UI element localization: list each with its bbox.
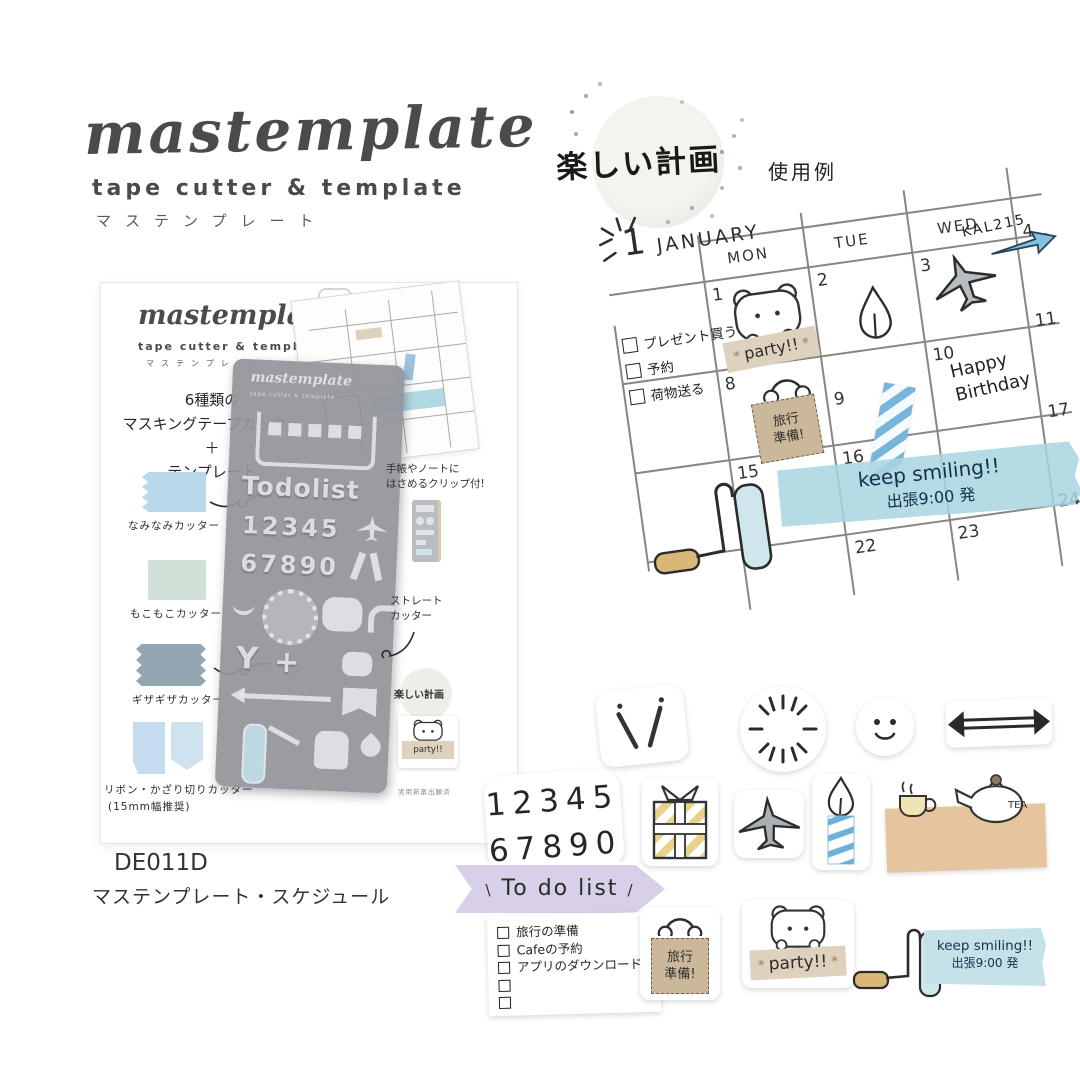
smiley-icon — [856, 698, 914, 756]
stencil-plane-icon — [353, 512, 390, 546]
todolist-banner-label: \ To do list / — [455, 865, 665, 913]
fluffy-cutter-sample — [148, 560, 206, 600]
stencil-flag-cutout — [342, 688, 377, 717]
checkbox-icon — [498, 962, 510, 974]
checkbox-icon — [497, 927, 509, 939]
teacup-icon — [894, 776, 942, 822]
tea-set-sticker: TEA — [888, 768, 1048, 820]
checkbox-icon — [621, 337, 638, 354]
brand-katakana: マステンプレート — [96, 210, 328, 231]
candle-icon — [812, 774, 870, 870]
brand-logo: mastemplate — [83, 92, 538, 168]
fluffy-cutter-label: もこもこカッター — [130, 606, 222, 621]
sunburst-sticker — [740, 686, 826, 772]
gift-icon — [642, 778, 718, 866]
party-washi-tape: party!! — [749, 946, 846, 981]
day-header-mon: MON — [726, 244, 770, 268]
stencil-hand-cutout — [314, 730, 350, 769]
product-code: DE011D — [114, 850, 208, 876]
stencil-brand: mastemplate — [250, 369, 352, 389]
travel-bag-sticker: 旅行準備! — [748, 368, 827, 463]
todolist-banner: \ To do list / — [452, 862, 668, 916]
airplane-sticker — [734, 790, 804, 858]
day-header-tue: TUE — [833, 230, 871, 253]
double-arrow-sticker — [945, 698, 1053, 748]
airplane-icon — [732, 788, 807, 861]
stencil-numbers-1: 12345 — [242, 511, 342, 543]
date-23: 23 — [957, 521, 981, 544]
todo-item-empty — [499, 990, 651, 1011]
stencil-drop-cutout — [356, 733, 384, 761]
checkbox-icon — [629, 388, 646, 405]
stencil-roller-handle — [268, 725, 300, 746]
date-22: 22 — [854, 536, 878, 559]
patent-note: 実用新案出願済 — [398, 786, 451, 796]
date-17: 17 — [1046, 399, 1070, 422]
stencil-scallop-circle-cutout — [261, 588, 319, 646]
plan-stamp-label: 楽しい計画 — [555, 134, 722, 188]
brand-subtitle: tape cutter & template — [92, 176, 466, 201]
date-1: 1 — [711, 285, 725, 306]
checkbox-icon — [499, 997, 511, 1009]
sunburst-icon — [740, 686, 826, 772]
svg-text:TEA: TEA — [1007, 800, 1027, 811]
stencil-cross-cutout: + — [273, 645, 300, 681]
stencil-y-arrow-cutout: Y — [236, 641, 259, 677]
date-9: 9 — [833, 389, 847, 410]
bag-handle-icon — [648, 912, 712, 936]
teapot-icon: TEA — [946, 768, 1038, 824]
stencil-subtitle: tape cutter & template — [250, 391, 335, 401]
double-arrow-icon — [945, 698, 1053, 748]
bear-icon — [765, 904, 831, 950]
stencil-arrow-head — [230, 687, 245, 704]
connector-squiggle — [380, 628, 420, 664]
birthday-note: HappyBirthday — [948, 344, 1033, 408]
gift-sticker — [642, 778, 718, 866]
pen-marks-sticker — [594, 684, 689, 769]
date-2: 2 — [816, 270, 830, 291]
stencil-speech-bubble-cutout — [322, 597, 363, 633]
checkbox-icon — [498, 979, 510, 991]
travel-bag-sticker: 旅行準備! — [640, 908, 720, 1000]
stencil-bear-cutout — [342, 651, 373, 676]
stencil-numbers-2: 67890 — [240, 549, 340, 581]
clip-note: 手帳やノートにはさめるクリップ付! — [386, 462, 485, 492]
straight-cutter-label: ストレートカッター — [390, 594, 443, 624]
wavy-cutter-sample — [142, 472, 206, 512]
todolist-paper: 旅行の準備 Cafeの予約 アプリのダウンロード — [487, 912, 662, 1016]
stencil-todolist: Todolist — [241, 471, 360, 505]
package-stamp-label: 楽しい計画 — [394, 686, 444, 701]
stencil-roller-cutout — [241, 723, 268, 784]
candle-flame-icon — [849, 283, 901, 351]
zigzag-cutter-label: ギザギザカッター — [132, 692, 224, 707]
wavy-cutter-label: なみなみカッター — [128, 518, 220, 533]
stamp-dots-decor — [570, 110, 574, 114]
package-bear-party-sticker: party!! — [398, 716, 458, 768]
stencil-candle-cutout — [370, 552, 382, 581]
stencil-smile-cutout — [232, 597, 255, 616]
ribbon-cutter-sublabel: (15mm幅推奨) — [108, 799, 191, 814]
stencil-candle-cutout — [350, 552, 366, 581]
product-page: mastemplate tape cutter & template マステンプ… — [0, 0, 1080, 1080]
roller-keep-smiling-sticker: keep smiling!! 出張9:00 発 — [850, 916, 1054, 1008]
bear-party-sticker: party!! — [742, 900, 854, 988]
pen-marks-icon — [594, 684, 689, 769]
checkbox-icon — [625, 363, 642, 380]
tape-slot-cutout — [255, 412, 377, 471]
calendar-example: 1 JANUARY MON TUE WED プレゼント買う 予約 荷物送る 1 … — [588, 154, 1080, 625]
keep-smiling-washi-tape: keep smiling!! 出張9:00 発 — [924, 928, 1046, 986]
candle-sticker — [812, 774, 870, 870]
bear-icon — [411, 719, 445, 741]
product-name: マステンプレート・スケジュール — [92, 882, 390, 909]
usage-example-label: 使用例 — [768, 156, 837, 185]
template-stencil: mastemplate tape cutter & template Todol… — [215, 358, 406, 793]
smiley-sticker — [856, 698, 914, 756]
date-11: 11 — [1034, 308, 1058, 331]
numbers-sticker: 12345 67890 — [483, 767, 626, 876]
stencil-arrow-cutout — [239, 693, 331, 702]
ribbon-cutter-sample — [133, 722, 165, 774]
zigzag-cutter-sample — [136, 644, 206, 686]
clip-illustration — [412, 500, 438, 562]
checkbox-icon — [497, 944, 509, 956]
tape-roller-icon — [634, 450, 799, 590]
